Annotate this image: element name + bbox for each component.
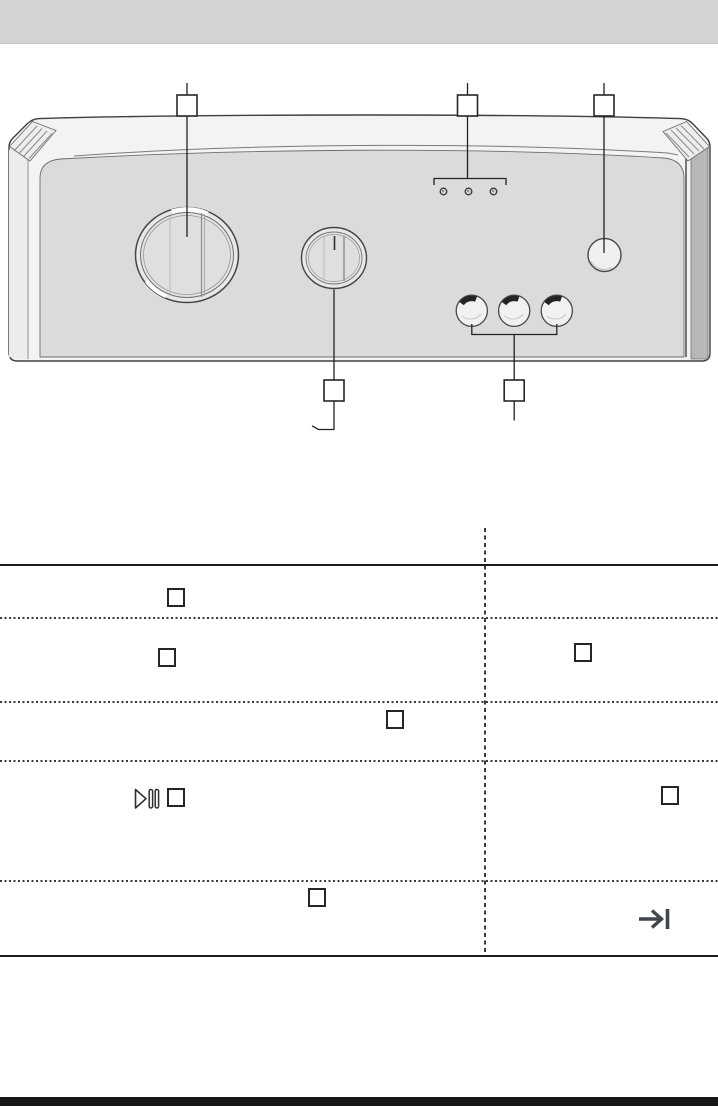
small-selector-knob [302,228,367,289]
callout-box-2 [458,95,478,116]
table-row-divider [0,617,718,619]
empty-box-icon [167,788,185,807]
callout-box-4 [324,380,344,401]
footer-bar [0,1097,718,1106]
callout-box-3 [594,95,614,116]
table-row-divider [0,701,718,703]
empty-box-icon [158,648,176,667]
empty-box-icon [661,786,679,805]
table-top-border [0,564,718,566]
skip-to-end-icon [634,903,676,933]
control-panel-illustration [0,0,718,445]
manual-page [0,0,718,1106]
table-bottom-border [0,955,718,957]
empty-box-icon [167,588,185,607]
empty-box-icon [574,643,592,662]
empty-box-icon [308,888,326,907]
table-column-divider [484,528,486,957]
option-buttons [456,295,572,326]
empty-box-icon [386,710,404,729]
play-pause-icon [132,786,162,812]
callout-box-1 [177,95,197,116]
table-row-divider [0,760,718,762]
callout-box-5 [504,380,524,401]
table-row-divider [0,880,718,882]
